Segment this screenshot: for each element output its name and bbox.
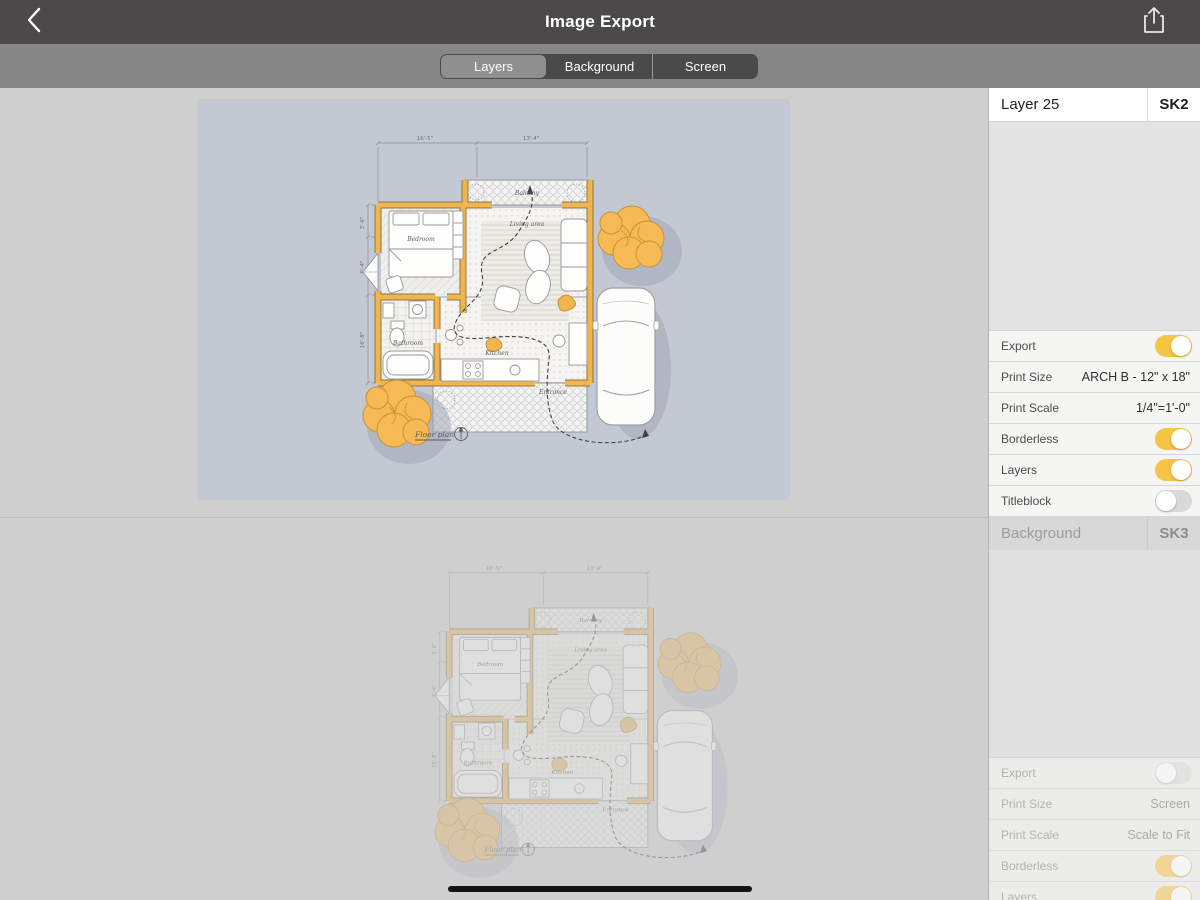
setting-label: Layers bbox=[989, 890, 1155, 900]
setting-label: Print Size bbox=[989, 797, 1150, 811]
settings-row-layers[interactable]: Layers bbox=[989, 455, 1200, 486]
preview-area: 16'-5" 13'-4" 3'-6" 6'-4" 16'-8" bbox=[0, 88, 988, 900]
setting-label: Print Scale bbox=[989, 828, 1127, 842]
tab-layers[interactable]: Layers bbox=[441, 55, 546, 78]
settings-row-print-size[interactable]: Print SizeARCH B - 12" x 18" bbox=[989, 362, 1200, 393]
layers-toggle[interactable] bbox=[1155, 886, 1192, 900]
page-title: Image Export bbox=[545, 12, 655, 32]
settings-row-titleblock[interactable]: Titleblock bbox=[989, 486, 1200, 517]
floor-plan-svg-faded bbox=[277, 531, 841, 900]
setting-value[interactable]: 1/4"=1'-0" bbox=[1136, 401, 1190, 415]
setting-value[interactable]: Screen bbox=[1150, 797, 1190, 811]
layer-tag: SK2 bbox=[1147, 88, 1200, 121]
toggle-knob bbox=[1156, 763, 1176, 783]
borderless-toggle[interactable] bbox=[1155, 428, 1192, 450]
export-settings-sidebar: Layer 25 SK2 ExportPrint SizeARCH B - 12… bbox=[988, 88, 1200, 900]
background-section-fill bbox=[989, 550, 1200, 757]
chevron-left-icon bbox=[26, 7, 42, 38]
tab-screen[interactable]: Screen bbox=[652, 54, 758, 79]
background-preview[interactable] bbox=[277, 531, 841, 900]
settings-row-borderless[interactable]: Borderless bbox=[989, 851, 1200, 882]
setting-label: Titleblock bbox=[989, 494, 1155, 508]
share-button[interactable] bbox=[1134, 0, 1174, 44]
toggle-knob bbox=[1156, 491, 1176, 511]
setting-label: Export bbox=[989, 766, 1155, 780]
home-indicator[interactable] bbox=[448, 886, 752, 892]
background-tag: SK3 bbox=[1147, 517, 1200, 550]
setting-label: Borderless bbox=[989, 859, 1155, 873]
layers-toggle[interactable] bbox=[1155, 459, 1192, 481]
layer-section-header[interactable]: Layer 25 SK2 bbox=[989, 88, 1200, 122]
borderless-toggle[interactable] bbox=[1155, 855, 1192, 877]
setting-label: Borderless bbox=[989, 432, 1155, 446]
layer-preview[interactable] bbox=[197, 99, 790, 500]
nav-bar: Image Export bbox=[0, 0, 1200, 44]
toggle-knob bbox=[1171, 460, 1191, 480]
settings-row-print-size[interactable]: Print SizeScreen bbox=[989, 789, 1200, 820]
layer-settings-rows: ExportPrint SizeARCH B - 12" x 18"Print … bbox=[989, 330, 1200, 517]
background-name: Background bbox=[989, 525, 1147, 542]
setting-label: Print Size bbox=[989, 370, 1082, 384]
settings-row-export[interactable]: Export bbox=[989, 331, 1200, 362]
toggle-knob bbox=[1171, 856, 1191, 876]
settings-row-layers[interactable]: Layers bbox=[989, 882, 1200, 900]
floor-plan-svg bbox=[197, 99, 790, 500]
setting-label: Layers bbox=[989, 463, 1155, 477]
toggle-knob bbox=[1171, 887, 1191, 900]
settings-row-print-scale[interactable]: Print ScaleScale to Fit bbox=[989, 820, 1200, 851]
setting-label: Export bbox=[989, 339, 1155, 353]
settings-row-print-scale[interactable]: Print Scale1/4"=1'-0" bbox=[989, 393, 1200, 424]
layer-name: Layer 25 bbox=[989, 96, 1147, 113]
setting-value[interactable]: ARCH B - 12" x 18" bbox=[1082, 370, 1190, 384]
export-toggle[interactable] bbox=[1155, 335, 1192, 357]
background-settings-rows: ExportPrint SizeScreenPrint ScaleScale t… bbox=[989, 757, 1200, 900]
background-section-header[interactable]: Background SK3 bbox=[989, 517, 1200, 551]
image-export-screen: Image Export LayersBackgroundScreen bbox=[0, 0, 1200, 900]
tab-background[interactable]: Background bbox=[547, 54, 652, 79]
toggle-knob bbox=[1171, 336, 1191, 356]
setting-label: Print Scale bbox=[989, 401, 1136, 415]
settings-row-borderless[interactable]: Borderless bbox=[989, 424, 1200, 455]
segmented-control: LayersBackgroundScreen bbox=[440, 54, 758, 79]
section-divider bbox=[0, 517, 988, 518]
setting-value[interactable]: Scale to Fit bbox=[1127, 828, 1190, 842]
share-icon bbox=[1143, 6, 1165, 39]
titleblock-toggle[interactable] bbox=[1155, 490, 1192, 512]
back-button[interactable] bbox=[14, 0, 54, 44]
toggle-knob bbox=[1171, 429, 1191, 449]
settings-row-export[interactable]: Export bbox=[989, 758, 1200, 789]
export-toggle[interactable] bbox=[1155, 762, 1192, 784]
